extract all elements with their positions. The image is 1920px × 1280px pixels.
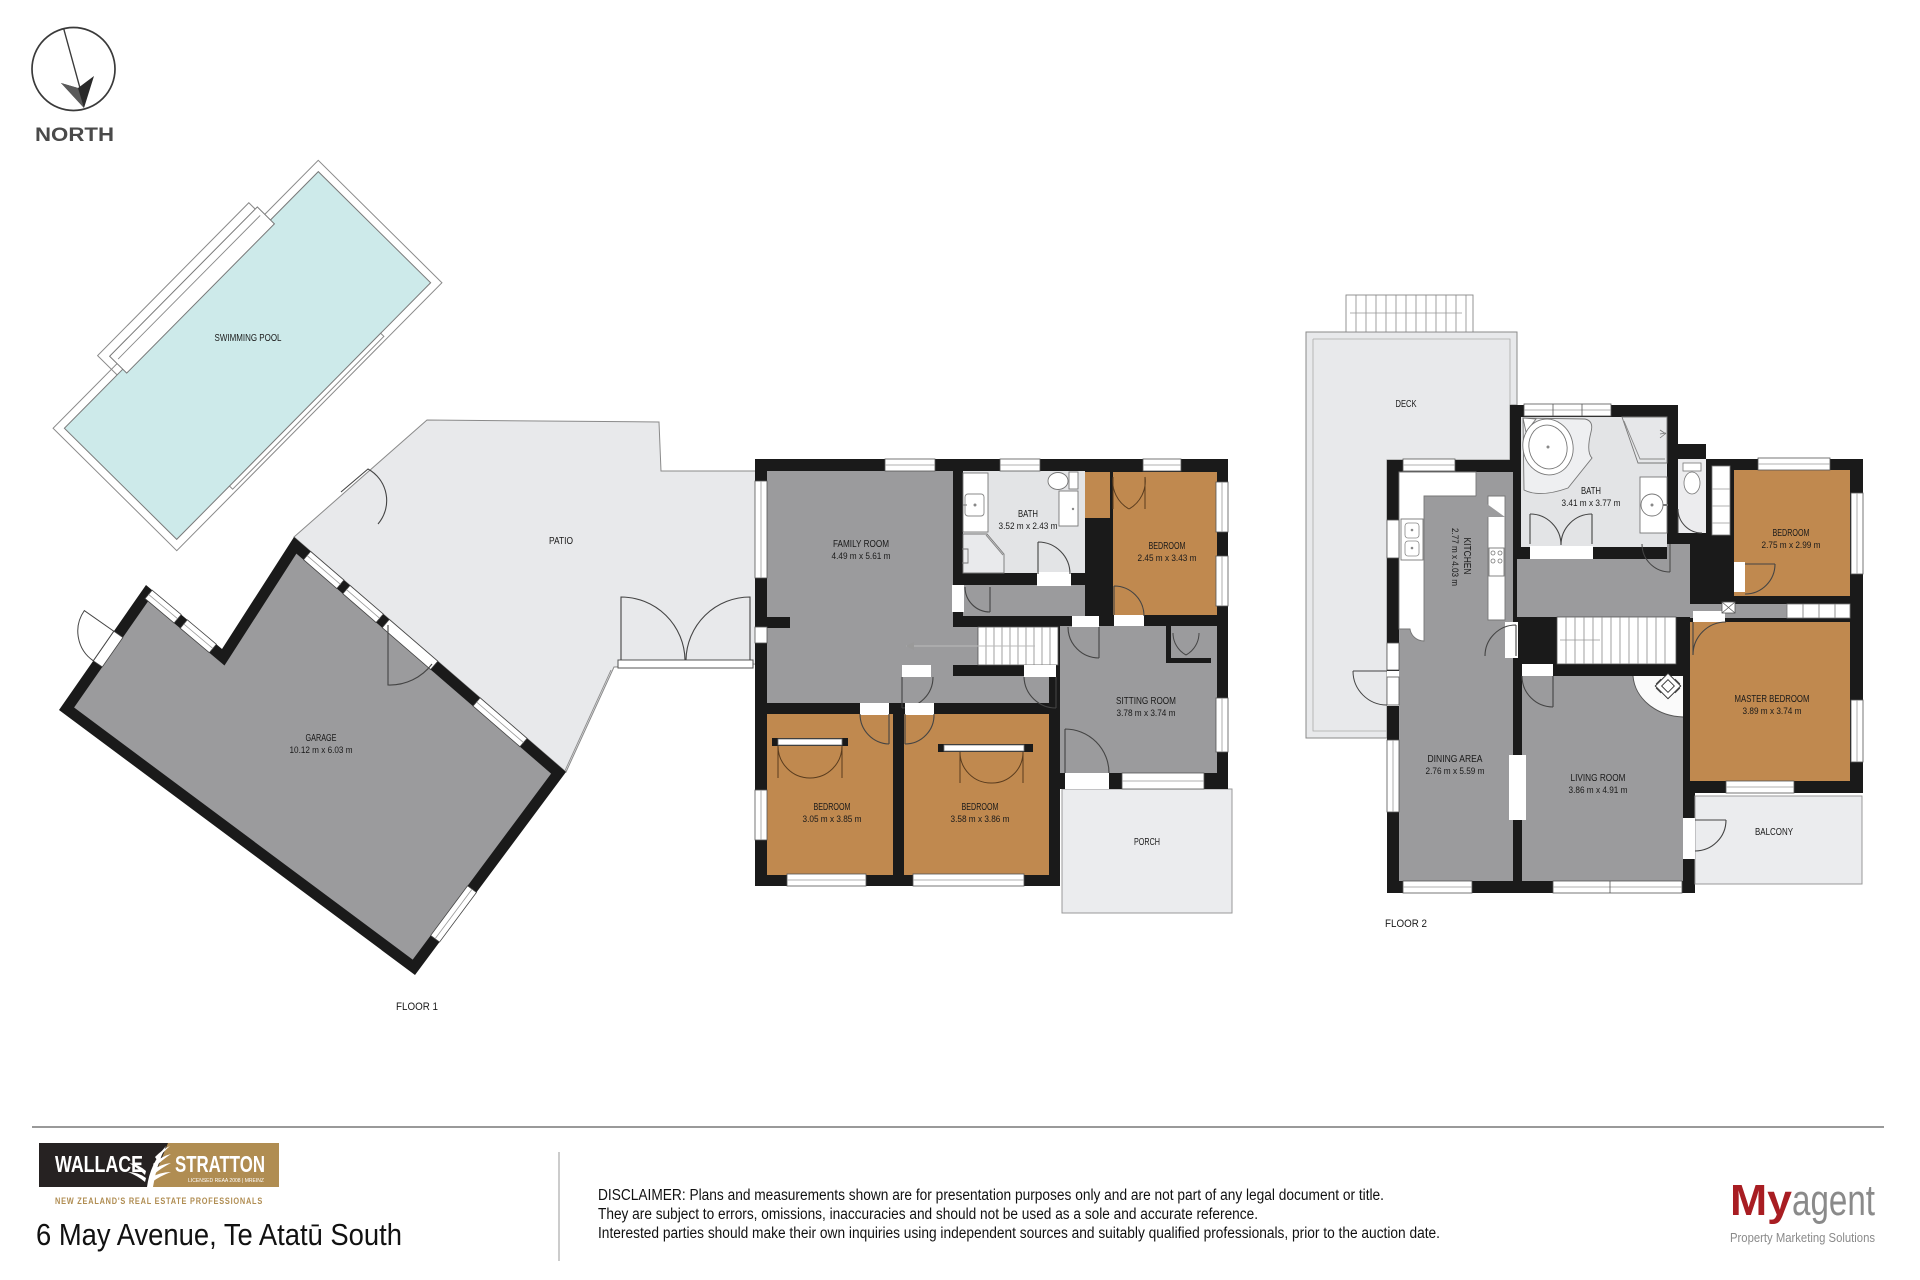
svg-text:6 May Avenue, Te Atatū South: 6 May Avenue, Te Atatū South bbox=[36, 1217, 402, 1252]
svg-text:My: My bbox=[1730, 1176, 1793, 1225]
svg-text:GARAGE: GARAGE bbox=[306, 733, 337, 744]
svg-text:BALCONY: BALCONY bbox=[1755, 827, 1793, 838]
svg-text:3.52 m x 2.43 m: 3.52 m x 2.43 m bbox=[999, 521, 1058, 531]
svg-text:DISCLAIMER: Plans and measurem: DISCLAIMER: Plans and measurements shown… bbox=[598, 1187, 1384, 1204]
svg-text:FLOOR 1: FLOOR 1 bbox=[396, 1001, 438, 1013]
svg-text:BEDROOM: BEDROOM bbox=[814, 802, 851, 813]
svg-text:FLOOR 2: FLOOR 2 bbox=[1385, 918, 1427, 930]
svg-text:3.89 m x 3.74 m: 3.89 m x 3.74 m bbox=[1743, 706, 1802, 716]
svg-text:agent: agent bbox=[1792, 1176, 1875, 1225]
svg-text:4.49 m x 5.61 m: 4.49 m x 5.61 m bbox=[832, 551, 891, 561]
svg-text:2.77 m x 4.03 m: 2.77 m x 4.03 m bbox=[1450, 528, 1460, 586]
svg-text:3.78 m x 3.74 m: 3.78 m x 3.74 m bbox=[1117, 708, 1176, 718]
svg-text:They are subject to errors, om: They are subject to errors, omissions, i… bbox=[598, 1206, 1258, 1223]
svg-text:STRATTON: STRATTON bbox=[175, 1151, 265, 1177]
svg-text:WALLACE: WALLACE bbox=[55, 1151, 143, 1177]
svg-text:DECK: DECK bbox=[1396, 399, 1417, 410]
svg-text:2.75 m x 2.99 m: 2.75 m x 2.99 m bbox=[1762, 540, 1821, 550]
svg-text:Interested parties should make: Interested parties should make their own… bbox=[598, 1225, 1440, 1242]
svg-text:PATIO: PATIO bbox=[549, 536, 573, 547]
svg-text:BATH: BATH bbox=[1581, 486, 1601, 497]
svg-text:SITTING ROOM: SITTING ROOM bbox=[1116, 696, 1176, 707]
svg-text:SWIMMING POOL: SWIMMING POOL bbox=[215, 333, 282, 344]
svg-text:LIVING ROOM: LIVING ROOM bbox=[1571, 773, 1626, 784]
svg-text:3.41 m x 3.77 m: 3.41 m x 3.77 m bbox=[1562, 498, 1621, 508]
svg-text:BATH: BATH bbox=[1018, 509, 1038, 520]
svg-text:2.76 m x 5.59 m: 2.76 m x 5.59 m bbox=[1426, 766, 1485, 776]
svg-text:PORCH: PORCH bbox=[1134, 837, 1160, 848]
svg-text:NEW ZEALAND'S REAL ESTATE PROF: NEW ZEALAND'S REAL ESTATE PROFESSIONALS bbox=[55, 1196, 263, 1207]
svg-text:2.45 m x 3.43 m: 2.45 m x 3.43 m bbox=[1138, 553, 1197, 563]
svg-text:LICENSED REAA 2008 | MREINZ: LICENSED REAA 2008 | MREINZ bbox=[188, 1178, 264, 1184]
svg-text:3.05 m x 3.85 m: 3.05 m x 3.85 m bbox=[803, 814, 862, 824]
svg-text:BEDROOM: BEDROOM bbox=[1149, 541, 1186, 552]
svg-text:BEDROOM: BEDROOM bbox=[1773, 528, 1810, 539]
svg-text:MASTER BEDROOM: MASTER BEDROOM bbox=[1735, 694, 1810, 705]
svg-text:FAMILY ROOM: FAMILY ROOM bbox=[833, 539, 889, 550]
svg-text:NORTH: NORTH bbox=[35, 125, 114, 146]
svg-text:10.12 m x 6.03 m: 10.12 m x 6.03 m bbox=[290, 745, 353, 755]
svg-text:3.58 m x 3.86 m: 3.58 m x 3.86 m bbox=[951, 814, 1010, 824]
svg-text:BEDROOM: BEDROOM bbox=[962, 802, 999, 813]
svg-text:KITCHEN: KITCHEN bbox=[1461, 538, 1472, 575]
svg-text:DINING AREA: DINING AREA bbox=[1428, 754, 1483, 765]
svg-text:Property Marketing Solutions: Property Marketing Solutions bbox=[1730, 1231, 1875, 1245]
svg-text:3.86 m x 4.91 m: 3.86 m x 4.91 m bbox=[1569, 785, 1628, 795]
